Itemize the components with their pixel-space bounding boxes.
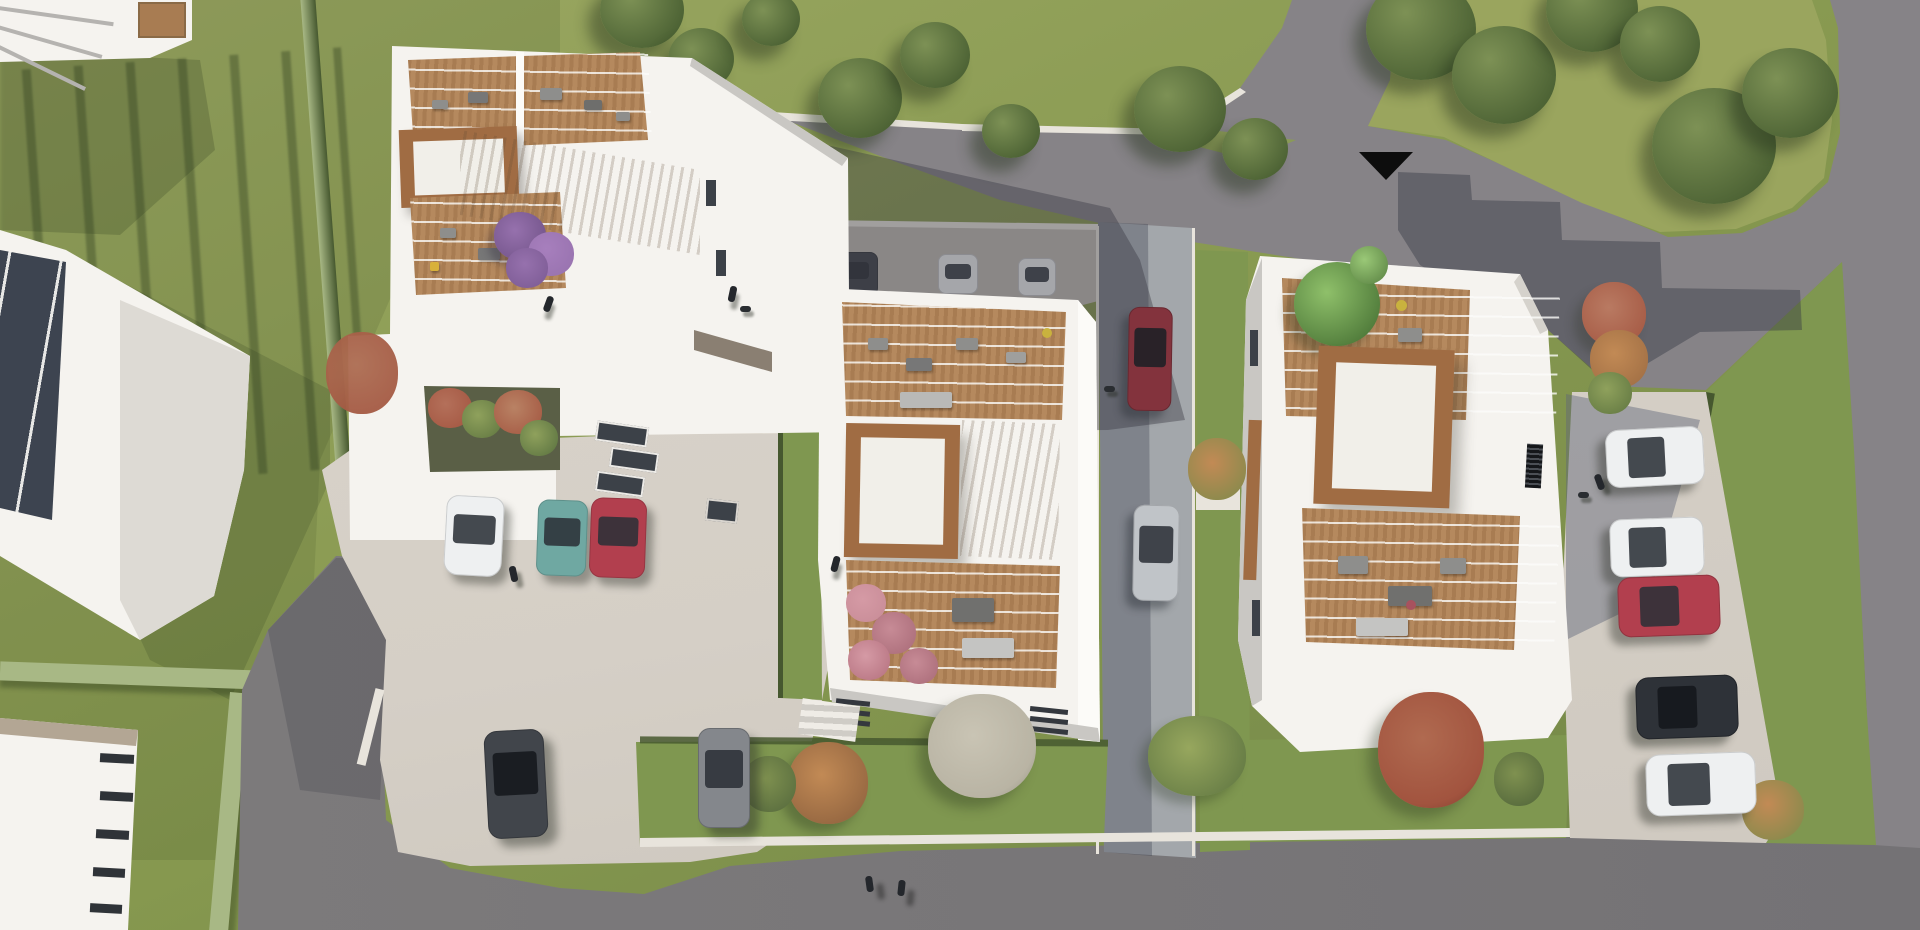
roof-hatch	[705, 498, 739, 523]
roof-furniture	[616, 112, 630, 121]
roof-furniture	[540, 88, 562, 100]
car	[1127, 307, 1173, 412]
window-slit	[100, 753, 134, 764]
building-right-skylight-box	[1313, 346, 1454, 509]
tree	[600, 0, 684, 48]
roof-furniture	[1440, 558, 1466, 574]
purple-flower-bush	[506, 248, 548, 288]
window-slit	[100, 791, 133, 802]
garden-tree-silver	[928, 694, 1036, 798]
tree	[1222, 118, 1288, 180]
dog-right-lot	[1578, 492, 1589, 498]
car	[536, 499, 589, 577]
neighbor-top-left-deck	[138, 2, 186, 38]
roof-accent-red	[1406, 600, 1416, 610]
garden-bush-green	[1494, 752, 1544, 806]
roof-furniture	[1338, 556, 1368, 574]
car	[1605, 425, 1706, 488]
roof-furniture	[430, 262, 439, 271]
tree	[1742, 48, 1838, 138]
roof-furniture	[432, 100, 448, 109]
car	[1132, 505, 1180, 602]
window-slit	[1250, 330, 1258, 366]
car-glass	[1667, 763, 1710, 807]
green-shrub	[1588, 372, 1632, 414]
green-shrub	[520, 420, 558, 456]
roof-sofa	[900, 392, 952, 408]
car-glass	[544, 518, 581, 547]
roof-plant-pot	[1396, 300, 1407, 311]
window-slit	[93, 867, 125, 878]
car-glass	[598, 516, 639, 546]
car	[1635, 674, 1739, 740]
roof-plant-pot	[1042, 328, 1052, 338]
roof-furniture	[906, 358, 932, 371]
skylight-panel	[859, 437, 945, 544]
car	[1617, 574, 1721, 638]
window-slit	[716, 250, 726, 276]
roof-furniture	[1398, 328, 1422, 342]
car	[443, 495, 505, 578]
skylight-panel	[1332, 362, 1436, 491]
pink-flower-bush	[848, 640, 890, 680]
tree	[1620, 6, 1700, 82]
tree	[1452, 26, 1556, 124]
dog	[740, 306, 751, 312]
roof-furniture	[478, 248, 500, 260]
car-glass	[1640, 585, 1680, 627]
roof-furniture	[440, 228, 456, 238]
building-middle-skylight-box	[844, 423, 960, 559]
car-glass	[1627, 437, 1666, 478]
planter-shrub	[1188, 438, 1246, 500]
site-marker-icon	[1359, 152, 1413, 180]
car-glass	[1134, 328, 1166, 368]
dog-driveway	[1104, 386, 1115, 392]
car	[1645, 751, 1757, 817]
car	[1609, 516, 1705, 577]
parapet-grille	[1525, 444, 1543, 489]
car-glass	[705, 750, 742, 788]
garden-shrub-green	[742, 756, 796, 812]
red-shrub-west	[326, 332, 398, 414]
car-glass	[1658, 686, 1698, 730]
window-slit	[90, 903, 122, 914]
roof-furniture	[956, 338, 978, 350]
car	[483, 729, 549, 840]
garden-tree-olive	[1148, 716, 1246, 796]
tree	[1134, 66, 1226, 152]
garden-tree-red	[1378, 692, 1484, 808]
tree	[818, 58, 902, 138]
roof-sofa	[962, 638, 1014, 658]
roof-furniture	[584, 100, 602, 110]
car-glass	[1628, 527, 1667, 568]
pink-flower-bush	[900, 648, 938, 684]
roof-divider-wall	[516, 52, 524, 148]
car	[698, 728, 750, 828]
roof-furniture	[468, 92, 488, 103]
roof-furniture	[952, 598, 994, 622]
roof-sofa	[1356, 618, 1408, 636]
roof-tree-small	[1350, 246, 1388, 284]
car-glass	[493, 751, 538, 796]
window-slit	[96, 829, 129, 840]
roof-furniture	[868, 338, 888, 350]
tree	[742, 0, 800, 46]
tree	[982, 104, 1040, 158]
window-slit	[706, 180, 716, 206]
garden-shrub-orange	[788, 742, 868, 824]
car	[589, 497, 648, 579]
window-slit	[1252, 600, 1260, 636]
car-glass	[1139, 526, 1173, 563]
tree	[900, 22, 970, 88]
car-glass	[453, 514, 496, 545]
roof-furniture	[1006, 352, 1026, 363]
aerial-render-scene	[0, 0, 1920, 930]
